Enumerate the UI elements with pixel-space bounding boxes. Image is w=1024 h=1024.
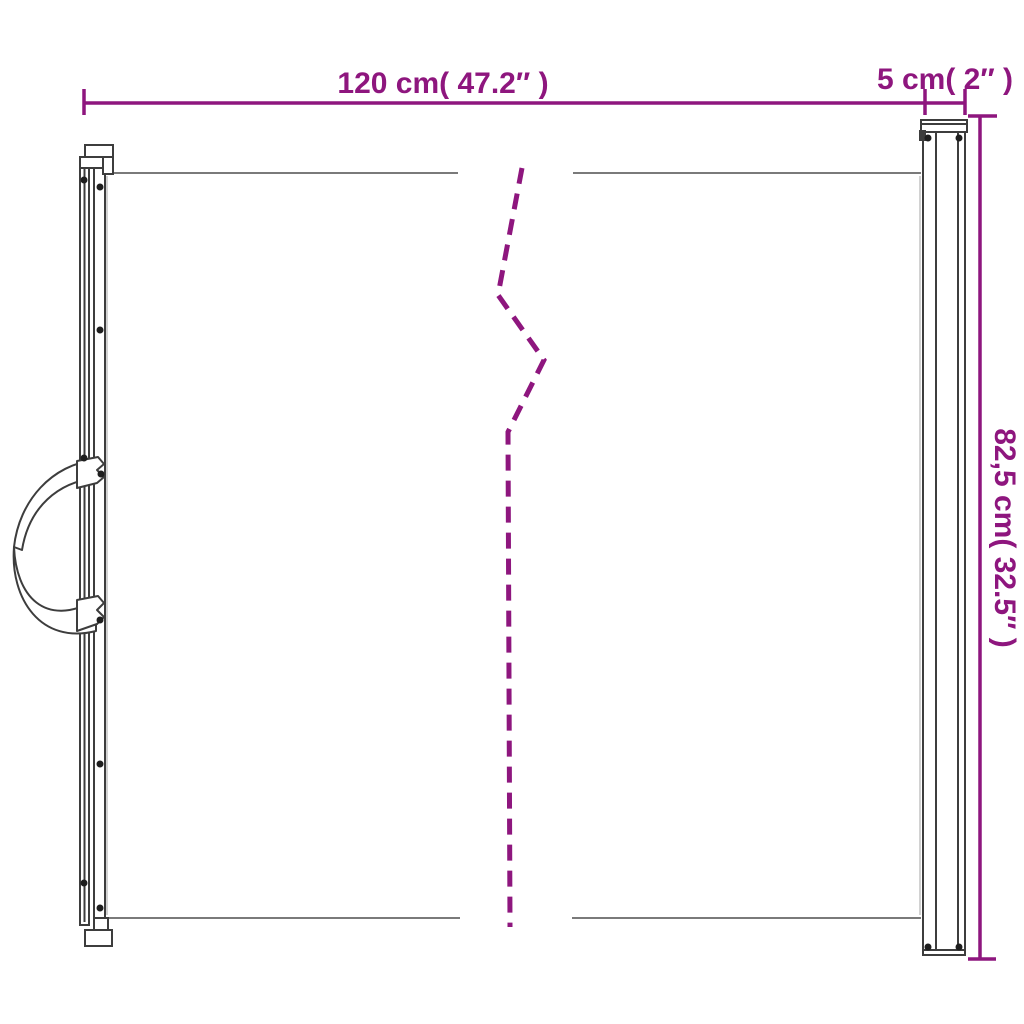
cassette-left-tab bbox=[920, 131, 925, 140]
break-line-path bbox=[498, 168, 544, 927]
screw bbox=[925, 944, 932, 951]
depth-dimension-label: 5 cm( 2″ ) bbox=[877, 63, 1013, 96]
diagram-svg: 120 cm( 47.2″ ) 5 cm( 2″ ) 82,5 cm( 32.5… bbox=[0, 0, 1024, 1024]
right-post-cassette bbox=[920, 120, 967, 955]
screw bbox=[81, 177, 88, 184]
pull-handle bbox=[14, 457, 104, 634]
screw bbox=[97, 905, 104, 912]
screw bbox=[97, 184, 104, 191]
screw bbox=[97, 761, 104, 768]
left-post-inner-bar bbox=[94, 158, 105, 918]
left-post-bottom-notch bbox=[94, 918, 108, 930]
screw bbox=[956, 135, 963, 142]
screws bbox=[81, 135, 963, 951]
screw bbox=[97, 617, 104, 624]
screw bbox=[925, 135, 932, 142]
screw bbox=[81, 880, 88, 887]
left-post bbox=[80, 145, 113, 946]
left-post-foot bbox=[85, 930, 112, 946]
height-dimension-label: 82,5 cm( 32.5″ ) bbox=[988, 428, 1021, 648]
screw bbox=[98, 471, 105, 478]
cassette-cap bbox=[921, 120, 967, 132]
mesh-faint-edges bbox=[107, 176, 920, 915]
product-dimension-diagram: 120 cm( 47.2″ ) 5 cm( 2″ ) 82,5 cm( 32.5… bbox=[0, 0, 1024, 1024]
mesh-panels bbox=[105, 173, 921, 918]
width-dimension-label: 120 cm( 47.2″ ) bbox=[337, 67, 548, 100]
screw bbox=[956, 944, 963, 951]
break-line bbox=[498, 168, 544, 927]
screw bbox=[81, 455, 88, 462]
screw bbox=[97, 327, 104, 334]
left-post-top-tab bbox=[103, 157, 113, 174]
